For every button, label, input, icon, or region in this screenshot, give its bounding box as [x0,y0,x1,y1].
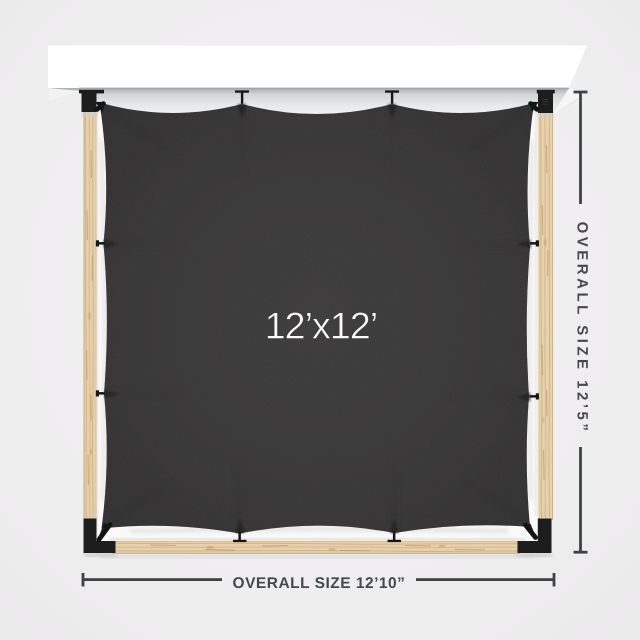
svg-text:12’x12’: 12’x12’ [265,304,378,346]
svg-text:OVERALL SIZE 12’5”: OVERALL SIZE 12’5” [573,222,590,435]
svg-text:OVERALL SIZE 12’10”: OVERALL SIZE 12’10” [233,575,406,592]
